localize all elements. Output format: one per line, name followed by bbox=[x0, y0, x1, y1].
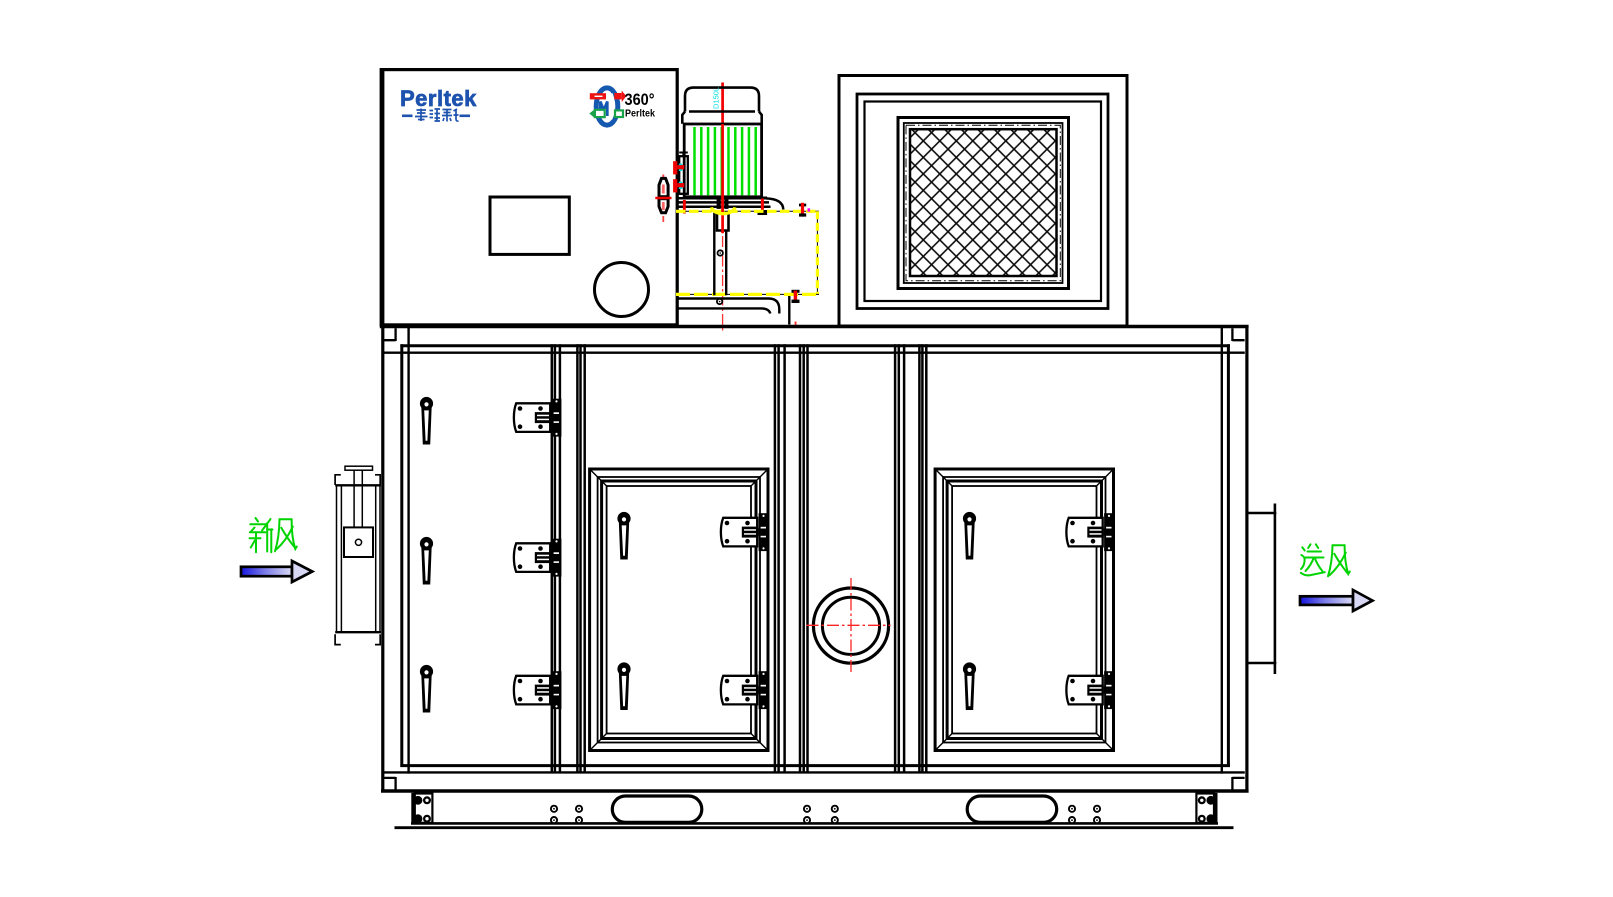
svg-text:360°: 360° bbox=[625, 91, 655, 109]
svg-text:Perltek: Perltek bbox=[625, 108, 655, 120]
svg-text:D150L: D150L bbox=[712, 87, 721, 109]
svg-text:Perltek: Perltek bbox=[400, 86, 477, 111]
